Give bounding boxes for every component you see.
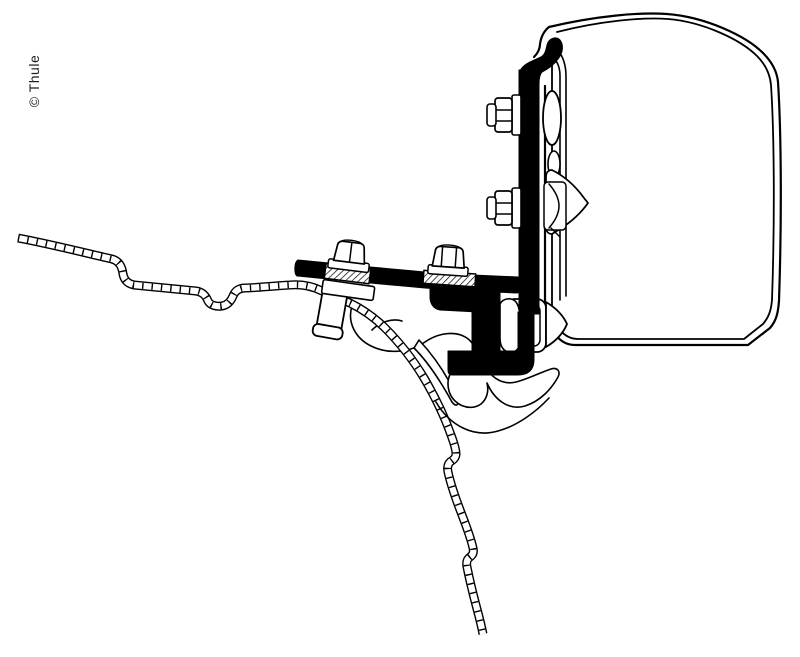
- technical-diagram: [0, 0, 800, 657]
- bolt-left-assembly: [312, 238, 375, 341]
- bolt-middle-hex-head: [432, 246, 465, 268]
- rail-lower-point: [546, 302, 567, 347]
- bolt-lower-side: [487, 188, 521, 228]
- bolt-upper-cap: [487, 104, 496, 126]
- adapter-bracket: [295, 38, 563, 433]
- structure-j-hook: [500, 299, 520, 353]
- case-inner-outline: [552, 19, 774, 339]
- roof-sheet-core: [18, 238, 483, 634]
- bracket-arm-spacer: [430, 288, 478, 312]
- roof-sheet-hatched: [18, 238, 483, 634]
- rail-mid-bracket-inner: [544, 182, 566, 230]
- awning-case: [534, 14, 781, 345]
- bolt-upper-flange: [512, 95, 521, 135]
- bracket-vertical-plate: [519, 70, 539, 314]
- bracket-down-leg: [472, 287, 500, 359]
- rail-bulge-upper: [543, 91, 561, 145]
- roof-sheet-outline: [18, 238, 483, 634]
- bolt-upper-side: [487, 95, 521, 135]
- case-outer-outline: [545, 14, 781, 345]
- bolt-middle-assembly: [423, 243, 478, 287]
- roof-sheet-hatch-ticks: [18, 238, 483, 634]
- copyright-watermark: © Thule: [26, 55, 42, 107]
- bolt-lower-flange: [512, 188, 521, 228]
- diagram-stage: © Thule: [0, 0, 800, 657]
- bolt-lower-hex: [495, 191, 512, 225]
- bolt-lower-cap: [487, 197, 496, 219]
- bolt-upper-hex: [495, 98, 512, 132]
